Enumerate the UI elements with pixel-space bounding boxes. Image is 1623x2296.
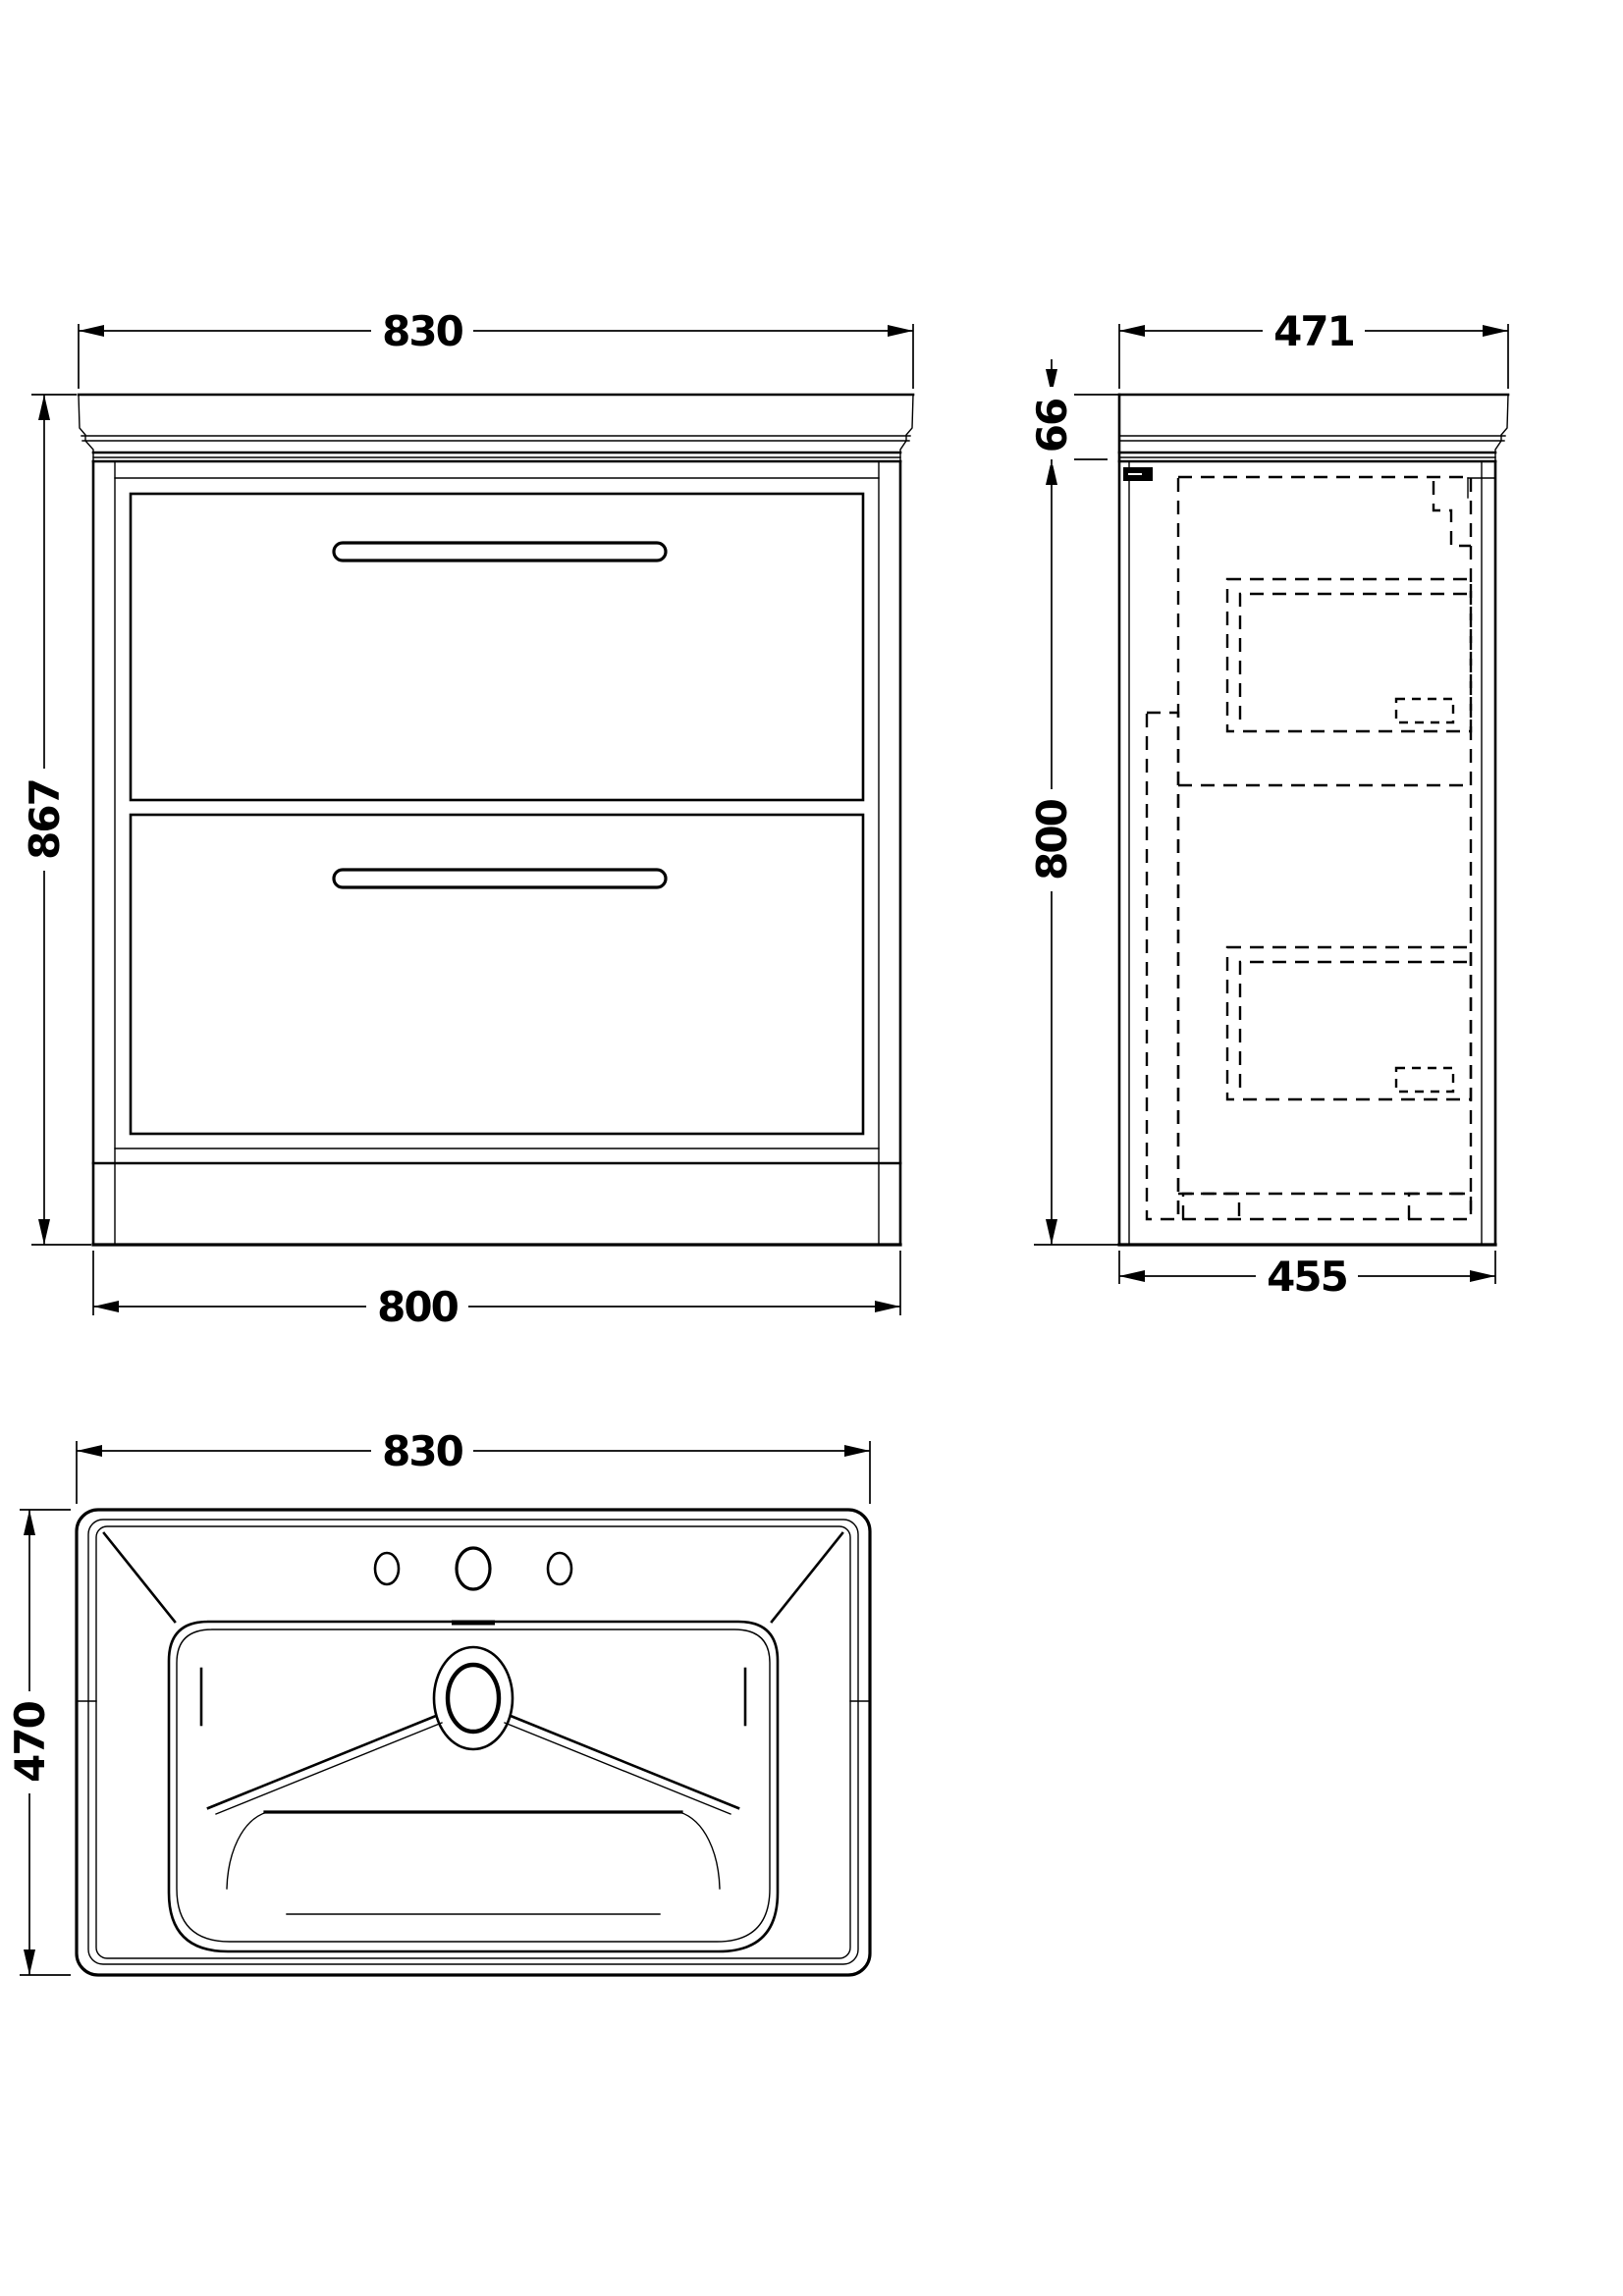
dim-label-side-worktop-height: 66	[1028, 400, 1076, 453]
dim-label-side-depth-bottom: 455	[1267, 1253, 1347, 1301]
dim-label-basin-depth: 470	[6, 1701, 54, 1782]
dim-label-front-width-bottom: 800	[377, 1283, 458, 1331]
vanity-unit-dimension-diagram: 830 867 800	[0, 0, 1623, 2296]
dim-label-basin-width: 830	[382, 1427, 462, 1475]
side-wall-bracket	[1123, 467, 1153, 481]
dim-label-front-width-top: 830	[382, 307, 462, 355]
technical-drawing-page: 830 867 800	[0, 0, 1623, 2296]
dim-label-side-depth-top: 471	[1273, 307, 1354, 355]
dim-label-side-cabinet-height: 800	[1028, 799, 1076, 880]
dim-label-front-height: 867	[21, 779, 69, 860]
